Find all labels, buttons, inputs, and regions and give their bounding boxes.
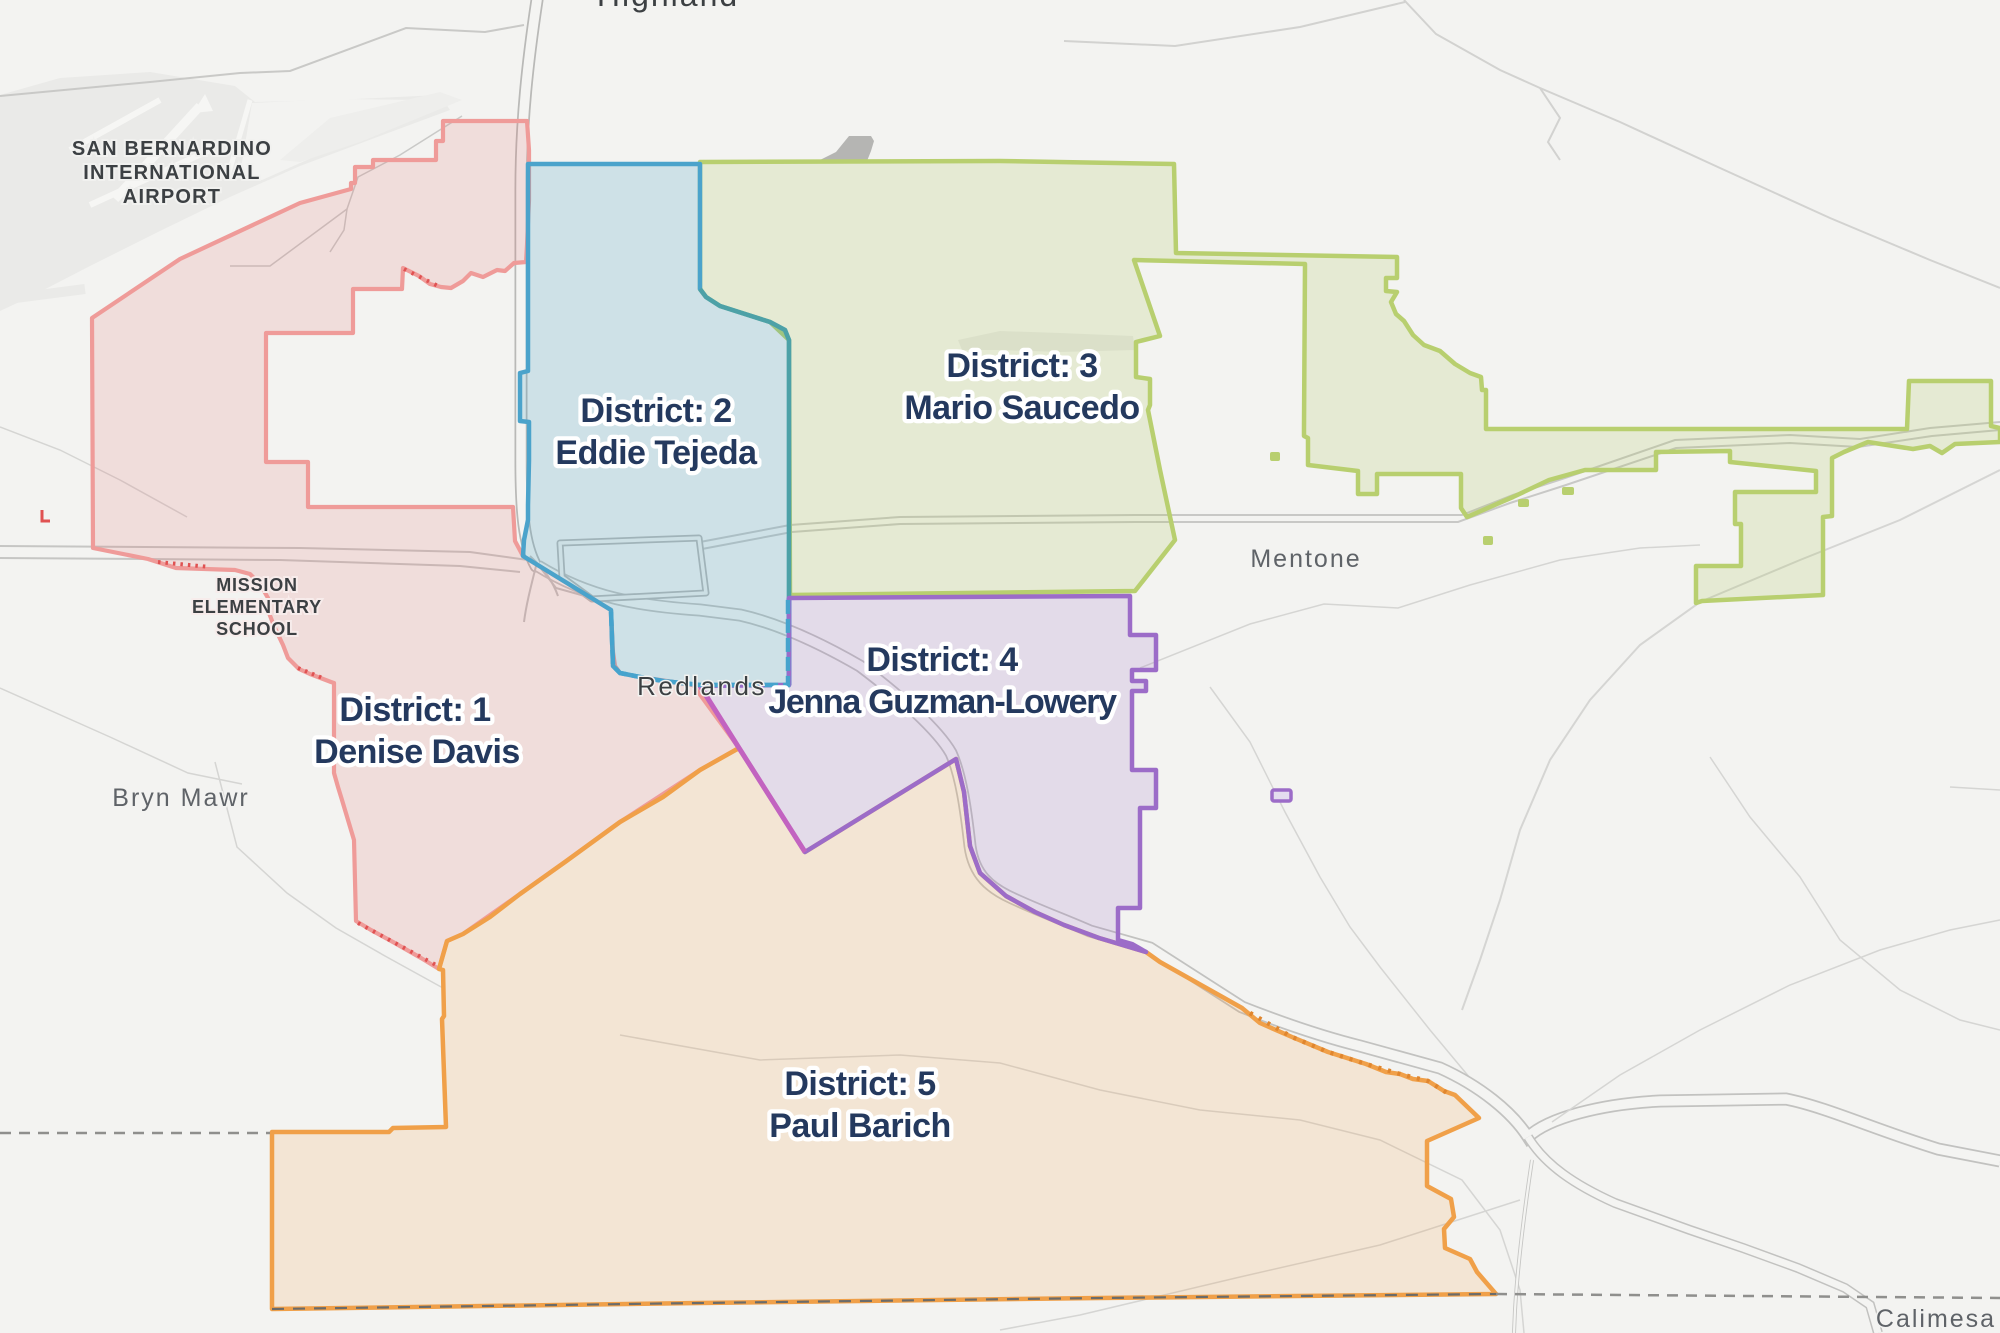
svg-text:Redlands: Redlands <box>637 671 767 701</box>
svg-text:ELEMENTARY: ELEMENTARY <box>192 597 322 617</box>
svg-text:Eddie Tejeda: Eddie Tejeda <box>555 434 758 472</box>
svg-text:Bryn Mawr: Bryn Mawr <box>112 784 249 812</box>
svg-text:AIRPORT: AIRPORT <box>123 186 221 208</box>
svg-text:MISSION: MISSION <box>216 575 298 595</box>
svg-text:District: 2: District: 2 <box>580 392 731 430</box>
svg-text:Denise Davis: Denise Davis <box>314 733 520 771</box>
svg-text:Highland: Highland <box>597 0 739 13</box>
svg-text:Mario Saucedo: Mario Saucedo <box>904 389 1139 427</box>
svg-text:Jenna Guzman-Lowery: Jenna Guzman-Lowery <box>768 683 1117 721</box>
svg-text:SAN BERNARDINO: SAN BERNARDINO <box>72 138 272 160</box>
svg-text:District: 4: District: 4 <box>866 641 1018 679</box>
svg-text:District: 3: District: 3 <box>946 347 1097 385</box>
svg-text:District: 1: District: 1 <box>339 691 490 729</box>
svg-text:Mentone: Mentone <box>1250 545 1361 573</box>
svg-text:Calimesa: Calimesa <box>1876 1305 1996 1333</box>
svg-text:SCHOOL: SCHOOL <box>216 619 298 639</box>
svg-text:Paul Barich: Paul Barich <box>769 1107 951 1145</box>
svg-text:INTERNATIONAL: INTERNATIONAL <box>83 162 260 184</box>
svg-text:District: 5: District: 5 <box>784 1065 935 1103</box>
